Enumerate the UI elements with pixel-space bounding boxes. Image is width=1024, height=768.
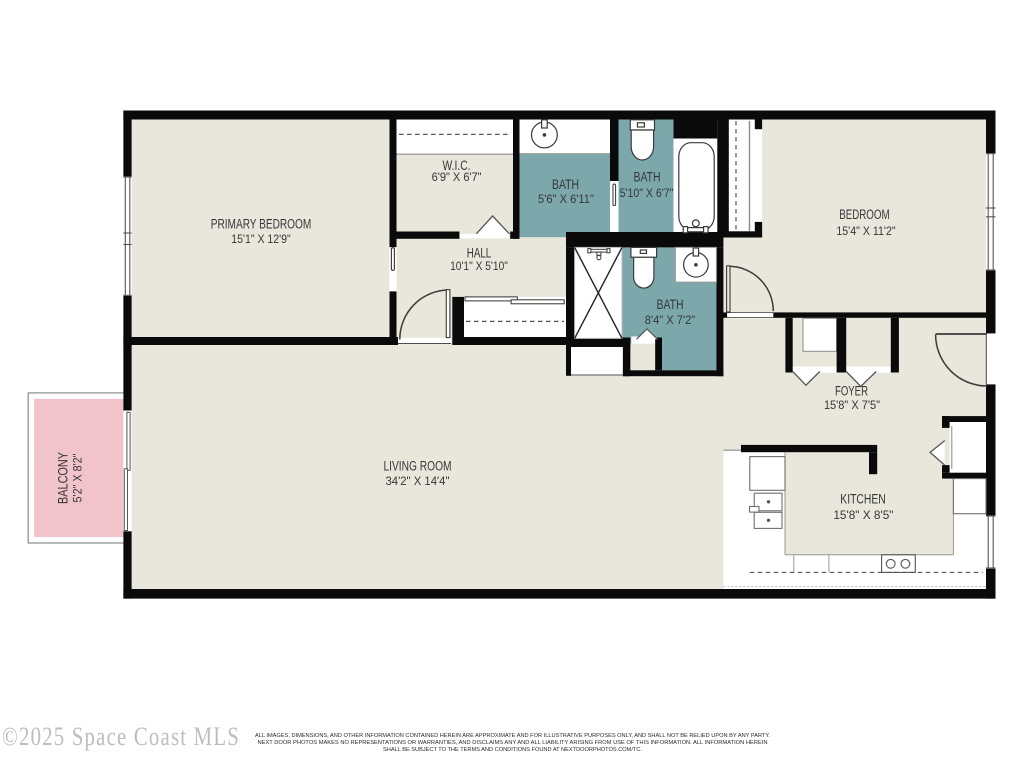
svg-text:15'8" X 8'5": 15'8" X 8'5" [833, 508, 893, 522]
svg-text:BALCONY: BALCONY [56, 452, 71, 504]
svg-text:15'8" X 7'5": 15'8" X 7'5" [824, 398, 880, 412]
svg-text:©2025 Space Coast MLS: ©2025 Space Coast MLS [2, 722, 240, 751]
svg-text:SHALL BE SUBJECT TO THE TERMS: SHALL BE SUBJECT TO THE TERMS AND CONDIT… [383, 747, 642, 753]
svg-text:10'1" X 5'10": 10'1" X 5'10" [450, 259, 508, 273]
svg-text:PRIMARY BEDROOM: PRIMARY BEDROOM [211, 217, 312, 232]
svg-text:8'4" X 7'2": 8'4" X 7'2" [645, 313, 695, 327]
svg-text:15'1" X 12'9": 15'1" X 12'9" [231, 232, 291, 246]
svg-text:5'6" X 6'11": 5'6" X 6'11" [538, 192, 594, 206]
svg-text:34'2" X 14'4": 34'2" X 14'4" [386, 474, 450, 488]
svg-text:15'4" X 11'2": 15'4" X 11'2" [836, 224, 895, 238]
svg-text:NEXT DOOR PHOTOS MAKES NO REPR: NEXT DOOR PHOTOS MAKES NO REPRESENTATION… [258, 740, 768, 746]
svg-text:5'10" X 6'7": 5'10" X 6'7" [620, 186, 674, 200]
svg-text:ALL IMAGES, DIMENSIONS, AND OT: ALL IMAGES, DIMENSIONS, AND OTHER INFORM… [255, 733, 770, 739]
svg-text:6'9" X 6'7": 6'9" X 6'7" [432, 170, 482, 184]
svg-text:LIVING ROOM: LIVING ROOM [384, 458, 452, 473]
svg-text:BATH: BATH [657, 297, 684, 312]
svg-text:KITCHEN: KITCHEN [840, 491, 885, 506]
svg-text:FOYER: FOYER [835, 383, 868, 398]
svg-text:5'2" X 8'2": 5'2" X 8'2" [71, 454, 85, 503]
svg-text:BATH: BATH [634, 169, 661, 184]
svg-text:BATH: BATH [552, 177, 579, 192]
svg-text:BEDROOM: BEDROOM [839, 207, 889, 222]
